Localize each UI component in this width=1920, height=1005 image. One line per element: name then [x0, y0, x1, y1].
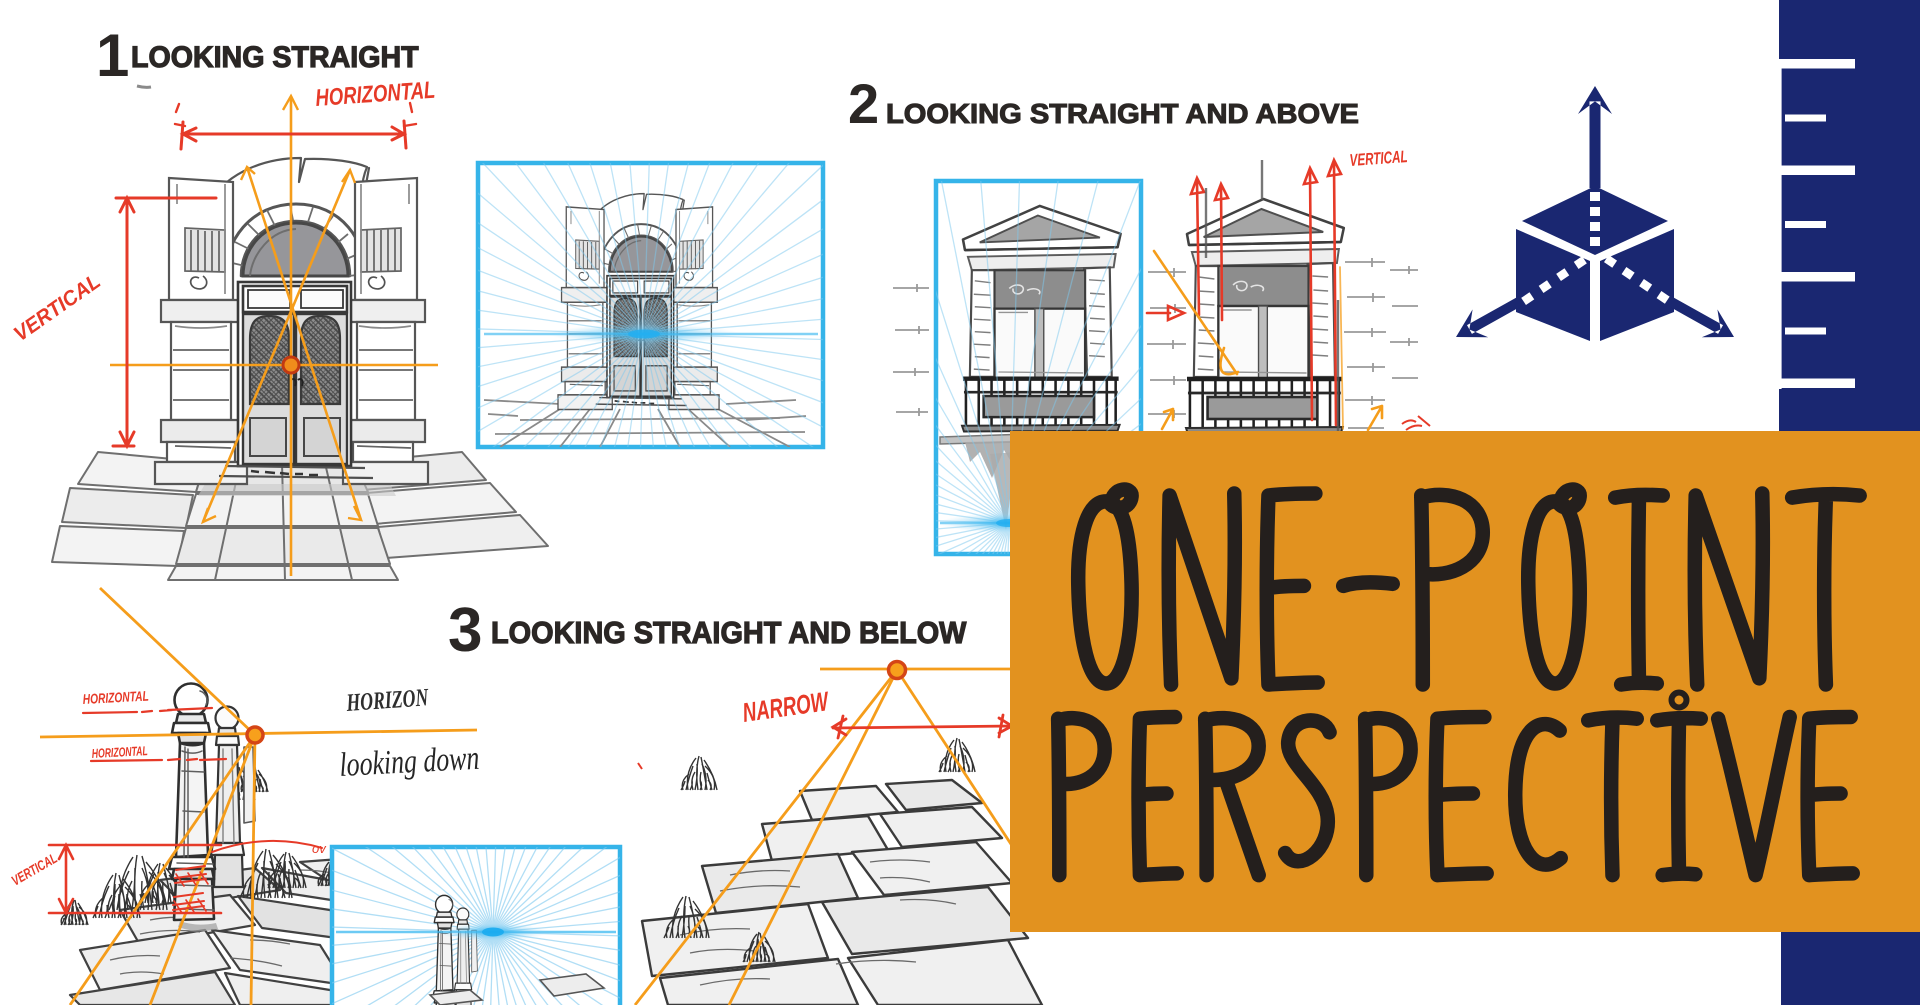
svg-text:3: 3 [448, 596, 482, 665]
svg-text:VERTICAL: VERTICAL [10, 270, 105, 346]
svg-text:NARROW: NARROW [741, 686, 832, 728]
svg-text:HORIZON: HORIZON [345, 684, 430, 717]
svg-text:looking down: looking down [338, 740, 480, 784]
svg-text:ov: ov [312, 841, 327, 856]
svg-text:LOOKING STRAIGHT: LOOKING STRAIGHT [131, 40, 419, 74]
svg-text:HORIZONTAL: HORIZONTAL [315, 77, 437, 112]
svg-text:LOOKING STRAIGHT AND BELOW: LOOKING STRAIGHT AND BELOW [491, 616, 967, 650]
svg-text:1: 1 [96, 22, 129, 89]
svg-text:2: 2 [848, 72, 879, 135]
svg-text:VERTICAL: VERTICAL [9, 850, 60, 889]
svg-text:HORIZONTAL: HORIZONTAL [91, 743, 148, 761]
svg-text:VERTICAL: VERTICAL [1349, 147, 1408, 170]
svg-text:HORIZONTAL: HORIZONTAL [82, 688, 149, 707]
svg-text:LOOKING STRAIGHT AND ABOVE: LOOKING STRAIGHT AND ABOVE [886, 98, 1359, 129]
